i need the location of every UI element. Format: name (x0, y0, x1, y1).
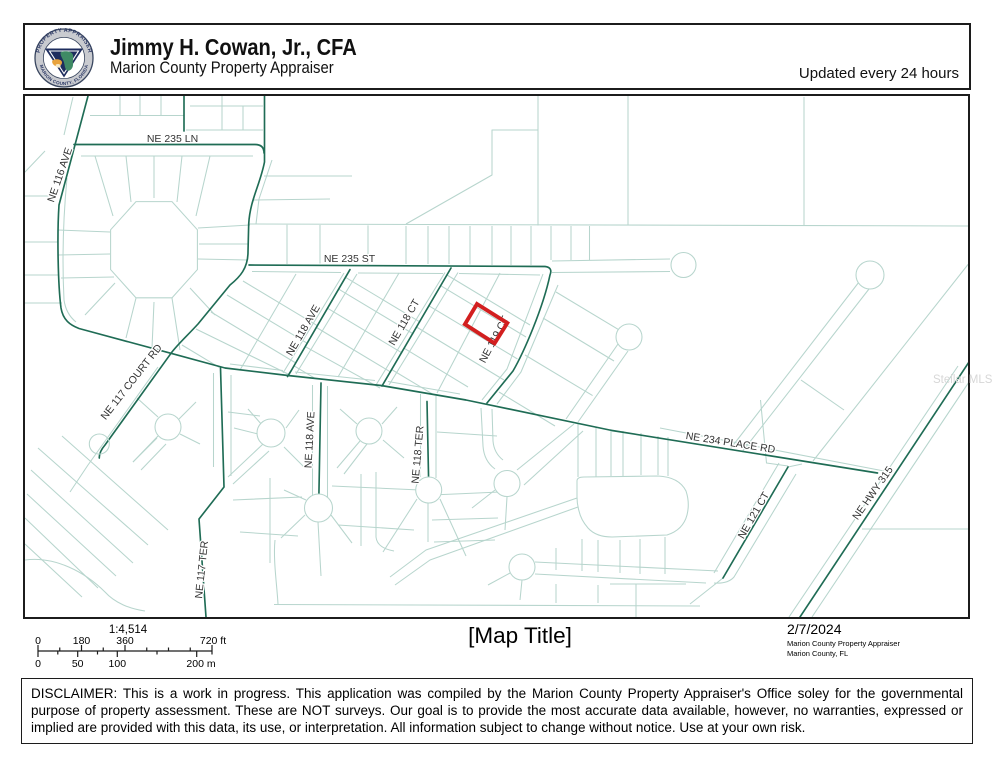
svg-text:NE 117 COURT RD: NE 117 COURT RD (99, 342, 165, 422)
svg-text:50: 50 (72, 658, 84, 670)
svg-text:NE 117 TER: NE 117 TER (193, 540, 211, 599)
svg-text:NE 118 TER: NE 118 TER (410, 425, 427, 484)
svg-text:100: 100 (109, 658, 127, 670)
svg-text:200 m: 200 m (186, 658, 215, 670)
svg-text:720 ft: 720 ft (200, 635, 226, 647)
svg-text:NE 234 PLACE RD: NE 234 PLACE RD (685, 430, 777, 456)
svg-text:NE 121 CT: NE 121 CT (736, 490, 773, 541)
svg-text:NE 118 CT: NE 118 CT (386, 297, 422, 348)
svg-text:NE 235 LN: NE 235 LN (147, 133, 198, 145)
svg-text:NE 116 AVE: NE 116 AVE (45, 146, 75, 204)
svg-text:NE 235 ST: NE 235 ST (324, 253, 376, 265)
svg-text:0: 0 (35, 658, 41, 670)
svg-text:NE 118 AVE: NE 118 AVE (303, 411, 318, 468)
